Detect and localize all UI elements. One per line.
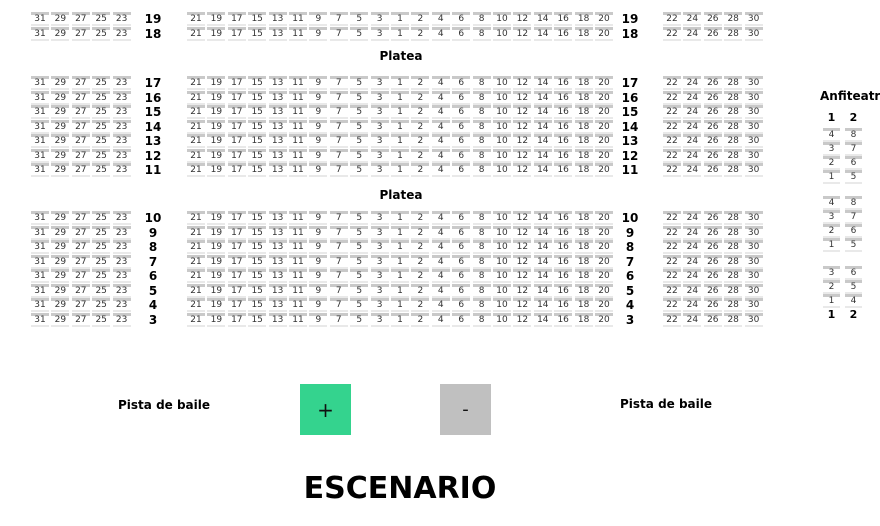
seat-platea-center-row10-2[interactable]: 2 [411, 211, 429, 225]
seat-platea-left-row11-25[interactable]: 25 [92, 163, 110, 177]
seat-platea-center-row11-13[interactable]: 13 [269, 163, 287, 177]
seat-platea-center-row17-18[interactable]: 18 [575, 76, 593, 90]
seat-platea-center-row19-7[interactable]: 7 [330, 12, 348, 26]
seat-platea-right-row6-22[interactable]: 22 [663, 269, 681, 283]
seat-platea-right-row19-30[interactable]: 30 [745, 12, 763, 26]
seat-platea-center-row3-12[interactable]: 12 [513, 313, 531, 327]
seat-platea-center-row3-6[interactable]: 6 [452, 313, 470, 327]
seat-anfiteatro-group1-col2-8[interactable]: 8 [845, 128, 862, 142]
seat-platea-right-row11-30[interactable]: 30 [745, 163, 763, 177]
seat-platea-center-row17-17[interactable]: 17 [228, 76, 246, 90]
seat-platea-center-row15-17[interactable]: 17 [228, 105, 246, 119]
seat-platea-center-row19-13[interactable]: 13 [269, 12, 287, 26]
seat-platea-center-row9-13[interactable]: 13 [269, 226, 287, 240]
seat-platea-center-row4-12[interactable]: 12 [513, 298, 531, 312]
seat-platea-center-row4-7[interactable]: 7 [330, 298, 348, 312]
seat-anfiteatro-group1-col1-1[interactable]: 1 [823, 170, 840, 184]
seat-platea-center-row11-10[interactable]: 10 [493, 163, 511, 177]
seat-platea-center-row11-14[interactable]: 14 [534, 163, 552, 177]
seat-platea-center-row13-8[interactable]: 8 [473, 134, 491, 148]
seat-platea-left-row7-29[interactable]: 29 [51, 255, 69, 269]
seat-platea-center-row6-2[interactable]: 2 [411, 269, 429, 283]
seat-platea-right-row7-22[interactable]: 22 [663, 255, 681, 269]
seat-platea-center-row10-4[interactable]: 4 [432, 211, 450, 225]
seat-platea-right-row14-26[interactable]: 26 [704, 120, 722, 134]
seat-platea-center-row4-6[interactable]: 6 [452, 298, 470, 312]
seat-platea-right-row12-22[interactable]: 22 [663, 149, 681, 163]
seat-platea-center-row9-14[interactable]: 14 [534, 226, 552, 240]
seat-platea-center-row15-8[interactable]: 8 [473, 105, 491, 119]
seat-platea-center-row6-17[interactable]: 17 [228, 269, 246, 283]
seat-platea-center-row4-21[interactable]: 21 [187, 298, 205, 312]
seat-platea-right-row13-24[interactable]: 24 [683, 134, 701, 148]
seat-platea-right-row15-24[interactable]: 24 [683, 105, 701, 119]
seat-platea-right-row15-28[interactable]: 28 [724, 105, 742, 119]
seat-platea-center-row18-2[interactable]: 2 [411, 27, 429, 41]
seat-platea-center-row7-10[interactable]: 10 [493, 255, 511, 269]
seat-platea-center-row18-18[interactable]: 18 [575, 27, 593, 41]
seat-platea-center-row12-19[interactable]: 19 [207, 149, 225, 163]
seat-platea-center-row6-11[interactable]: 11 [289, 269, 307, 283]
seat-platea-center-row5-6[interactable]: 6 [452, 284, 470, 298]
zoom-in-button[interactable]: + [300, 384, 351, 435]
seat-platea-left-row7-25[interactable]: 25 [92, 255, 110, 269]
seat-platea-center-row16-19[interactable]: 19 [207, 91, 225, 105]
seat-platea-center-row4-17[interactable]: 17 [228, 298, 246, 312]
seat-platea-right-row7-26[interactable]: 26 [704, 255, 722, 269]
seat-platea-left-row18-23[interactable]: 23 [113, 27, 131, 41]
seat-platea-right-row5-24[interactable]: 24 [683, 284, 701, 298]
seat-platea-center-row6-9[interactable]: 9 [309, 269, 327, 283]
seat-platea-center-row5-3[interactable]: 3 [371, 284, 389, 298]
seat-platea-left-row9-29[interactable]: 29 [51, 226, 69, 240]
seat-platea-left-row12-29[interactable]: 29 [51, 149, 69, 163]
seat-platea-center-row8-19[interactable]: 19 [207, 240, 225, 254]
seat-platea-center-row4-8[interactable]: 8 [473, 298, 491, 312]
zoom-out-button[interactable]: - [440, 384, 491, 435]
seat-platea-left-row17-29[interactable]: 29 [51, 76, 69, 90]
seat-platea-left-row5-23[interactable]: 23 [113, 284, 131, 298]
seat-platea-center-row14-8[interactable]: 8 [473, 120, 491, 134]
seat-platea-left-row3-27[interactable]: 27 [72, 313, 90, 327]
seat-anfiteatro-group2-col2-7[interactable]: 7 [845, 210, 862, 224]
seat-platea-right-row14-22[interactable]: 22 [663, 120, 681, 134]
seat-platea-center-row10-5[interactable]: 5 [350, 211, 368, 225]
seat-platea-center-row8-1[interactable]: 1 [391, 240, 409, 254]
seat-platea-left-row11-23[interactable]: 23 [113, 163, 131, 177]
seat-platea-left-row10-31[interactable]: 31 [31, 211, 49, 225]
seat-platea-center-row10-21[interactable]: 21 [187, 211, 205, 225]
seat-platea-right-row5-30[interactable]: 30 [745, 284, 763, 298]
seat-platea-center-row19-16[interactable]: 16 [554, 12, 572, 26]
seat-anfiteatro-group1-col2-5[interactable]: 5 [845, 170, 862, 184]
seat-platea-right-row16-30[interactable]: 30 [745, 91, 763, 105]
seat-platea-center-row19-10[interactable]: 10 [493, 12, 511, 26]
seat-platea-left-row9-31[interactable]: 31 [31, 226, 49, 240]
seat-platea-center-row8-17[interactable]: 17 [228, 240, 246, 254]
seat-platea-right-row16-26[interactable]: 26 [704, 91, 722, 105]
seat-platea-left-row15-31[interactable]: 31 [31, 105, 49, 119]
seat-platea-center-row19-14[interactable]: 14 [534, 12, 552, 26]
seat-platea-center-row8-13[interactable]: 13 [269, 240, 287, 254]
seat-platea-center-row17-11[interactable]: 11 [289, 76, 307, 90]
seat-platea-right-row12-26[interactable]: 26 [704, 149, 722, 163]
seat-platea-left-row5-27[interactable]: 27 [72, 284, 90, 298]
seat-platea-center-row11-11[interactable]: 11 [289, 163, 307, 177]
seat-platea-center-row5-2[interactable]: 2 [411, 284, 429, 298]
seat-platea-center-row17-5[interactable]: 5 [350, 76, 368, 90]
seat-platea-center-row3-17[interactable]: 17 [228, 313, 246, 327]
seat-platea-center-row5-7[interactable]: 7 [330, 284, 348, 298]
seat-platea-center-row5-14[interactable]: 14 [534, 284, 552, 298]
seat-platea-center-row8-4[interactable]: 4 [432, 240, 450, 254]
seat-platea-right-row16-22[interactable]: 22 [663, 91, 681, 105]
seat-platea-center-row15-1[interactable]: 1 [391, 105, 409, 119]
seat-platea-center-row5-8[interactable]: 8 [473, 284, 491, 298]
seat-platea-center-row3-8[interactable]: 8 [473, 313, 491, 327]
seat-platea-left-row16-27[interactable]: 27 [72, 91, 90, 105]
seat-platea-center-row18-19[interactable]: 19 [207, 27, 225, 41]
seat-platea-center-row7-7[interactable]: 7 [330, 255, 348, 269]
seat-platea-center-row18-9[interactable]: 9 [309, 27, 327, 41]
seat-platea-center-row14-10[interactable]: 10 [493, 120, 511, 134]
seat-platea-center-row12-5[interactable]: 5 [350, 149, 368, 163]
seat-platea-left-row6-31[interactable]: 31 [31, 269, 49, 283]
seat-platea-center-row13-16[interactable]: 16 [554, 134, 572, 148]
seat-platea-center-row12-12[interactable]: 12 [513, 149, 531, 163]
seat-platea-center-row6-6[interactable]: 6 [452, 269, 470, 283]
seat-platea-center-row5-5[interactable]: 5 [350, 284, 368, 298]
seat-platea-right-row12-30[interactable]: 30 [745, 149, 763, 163]
seat-platea-center-row17-3[interactable]: 3 [371, 76, 389, 90]
seat-platea-center-row19-15[interactable]: 15 [248, 12, 266, 26]
seat-platea-left-row15-29[interactable]: 29 [51, 105, 69, 119]
seat-platea-center-row4-9[interactable]: 9 [309, 298, 327, 312]
seat-anfiteatro-group3-col1-3[interactable]: 3 [823, 266, 840, 280]
seat-platea-left-row17-25[interactable]: 25 [92, 76, 110, 90]
seat-platea-center-row9-20[interactable]: 20 [595, 226, 613, 240]
seat-platea-center-row16-1[interactable]: 1 [391, 91, 409, 105]
seat-platea-left-row12-25[interactable]: 25 [92, 149, 110, 163]
seat-platea-center-row19-5[interactable]: 5 [350, 12, 368, 26]
seat-platea-center-row4-20[interactable]: 20 [595, 298, 613, 312]
seat-platea-center-row13-14[interactable]: 14 [534, 134, 552, 148]
seat-platea-left-row8-23[interactable]: 23 [113, 240, 131, 254]
seat-platea-center-row9-6[interactable]: 6 [452, 226, 470, 240]
seat-platea-center-row14-14[interactable]: 14 [534, 120, 552, 134]
seat-platea-center-row17-16[interactable]: 16 [554, 76, 572, 90]
seat-platea-left-row5-31[interactable]: 31 [31, 284, 49, 298]
seat-platea-center-row7-15[interactable]: 15 [248, 255, 266, 269]
seat-platea-center-row12-10[interactable]: 10 [493, 149, 511, 163]
seat-platea-left-row7-23[interactable]: 23 [113, 255, 131, 269]
seat-platea-center-row16-17[interactable]: 17 [228, 91, 246, 105]
seat-platea-left-row13-25[interactable]: 25 [92, 134, 110, 148]
seat-platea-center-row13-4[interactable]: 4 [432, 134, 450, 148]
seat-platea-center-row12-17[interactable]: 17 [228, 149, 246, 163]
seat-platea-right-row10-30[interactable]: 30 [745, 211, 763, 225]
seat-platea-center-row8-9[interactable]: 9 [309, 240, 327, 254]
seat-platea-right-row19-24[interactable]: 24 [683, 12, 701, 26]
seat-platea-right-row6-24[interactable]: 24 [683, 269, 701, 283]
seat-platea-center-row7-19[interactable]: 19 [207, 255, 225, 269]
seat-platea-center-row7-11[interactable]: 11 [289, 255, 307, 269]
seat-platea-center-row19-2[interactable]: 2 [411, 12, 429, 26]
seat-platea-right-row8-30[interactable]: 30 [745, 240, 763, 254]
seat-platea-left-row5-29[interactable]: 29 [51, 284, 69, 298]
seat-platea-center-row14-1[interactable]: 1 [391, 120, 409, 134]
seat-platea-center-row19-4[interactable]: 4 [432, 12, 450, 26]
seat-platea-center-row18-1[interactable]: 1 [391, 27, 409, 41]
seat-platea-center-row7-14[interactable]: 14 [534, 255, 552, 269]
seat-platea-left-row14-31[interactable]: 31 [31, 120, 49, 134]
seat-platea-left-row18-31[interactable]: 31 [31, 27, 49, 41]
seat-platea-center-row9-3[interactable]: 3 [371, 226, 389, 240]
seat-platea-center-row17-15[interactable]: 15 [248, 76, 266, 90]
seat-platea-center-row11-12[interactable]: 12 [513, 163, 531, 177]
seat-platea-center-row19-18[interactable]: 18 [575, 12, 593, 26]
seat-platea-center-row12-9[interactable]: 9 [309, 149, 327, 163]
seat-platea-center-row10-7[interactable]: 7 [330, 211, 348, 225]
seat-platea-center-row5-19[interactable]: 19 [207, 284, 225, 298]
seat-platea-right-row14-28[interactable]: 28 [724, 120, 742, 134]
seat-platea-left-row17-23[interactable]: 23 [113, 76, 131, 90]
seat-platea-left-row13-31[interactable]: 31 [31, 134, 49, 148]
seat-platea-center-row6-18[interactable]: 18 [575, 269, 593, 283]
seat-platea-center-row7-6[interactable]: 6 [452, 255, 470, 269]
seat-platea-center-row13-3[interactable]: 3 [371, 134, 389, 148]
seat-platea-center-row6-10[interactable]: 10 [493, 269, 511, 283]
seat-platea-right-row17-26[interactable]: 26 [704, 76, 722, 90]
seat-platea-left-row4-27[interactable]: 27 [72, 298, 90, 312]
seat-platea-center-row4-13[interactable]: 13 [269, 298, 287, 312]
seat-platea-center-row7-8[interactable]: 8 [473, 255, 491, 269]
seat-platea-left-row13-23[interactable]: 23 [113, 134, 131, 148]
seat-platea-center-row13-19[interactable]: 19 [207, 134, 225, 148]
seat-platea-center-row13-10[interactable]: 10 [493, 134, 511, 148]
seat-platea-center-row11-6[interactable]: 6 [452, 163, 470, 177]
seat-platea-center-row14-13[interactable]: 13 [269, 120, 287, 134]
seat-platea-center-row12-15[interactable]: 15 [248, 149, 266, 163]
seat-platea-center-row16-16[interactable]: 16 [554, 91, 572, 105]
seat-platea-center-row8-15[interactable]: 15 [248, 240, 266, 254]
seat-platea-right-row14-30[interactable]: 30 [745, 120, 763, 134]
seat-platea-center-row7-12[interactable]: 12 [513, 255, 531, 269]
seat-platea-left-row7-27[interactable]: 27 [72, 255, 90, 269]
seat-platea-center-row16-14[interactable]: 14 [534, 91, 552, 105]
seat-platea-left-row11-31[interactable]: 31 [31, 163, 49, 177]
seat-platea-center-row5-21[interactable]: 21 [187, 284, 205, 298]
seat-platea-right-row19-28[interactable]: 28 [724, 12, 742, 26]
seat-platea-center-row6-8[interactable]: 8 [473, 269, 491, 283]
seat-platea-left-row18-29[interactable]: 29 [51, 27, 69, 41]
seat-platea-right-row13-22[interactable]: 22 [663, 134, 681, 148]
seat-platea-center-row12-13[interactable]: 13 [269, 149, 287, 163]
seat-platea-center-row15-21[interactable]: 21 [187, 105, 205, 119]
seat-platea-right-row3-22[interactable]: 22 [663, 313, 681, 327]
seat-platea-center-row4-4[interactable]: 4 [432, 298, 450, 312]
seat-platea-right-row18-22[interactable]: 22 [663, 27, 681, 41]
seat-platea-center-row3-20[interactable]: 20 [595, 313, 613, 327]
seat-platea-center-row14-18[interactable]: 18 [575, 120, 593, 134]
seat-platea-center-row17-13[interactable]: 13 [269, 76, 287, 90]
seat-platea-center-row10-17[interactable]: 17 [228, 211, 246, 225]
seat-platea-right-row10-26[interactable]: 26 [704, 211, 722, 225]
seat-platea-right-row5-26[interactable]: 26 [704, 284, 722, 298]
seat-platea-center-row9-11[interactable]: 11 [289, 226, 307, 240]
seat-platea-left-row9-23[interactable]: 23 [113, 226, 131, 240]
seat-platea-center-row17-4[interactable]: 4 [432, 76, 450, 90]
seat-platea-center-row10-6[interactable]: 6 [452, 211, 470, 225]
seat-platea-left-row17-31[interactable]: 31 [31, 76, 49, 90]
seat-platea-right-row4-26[interactable]: 26 [704, 298, 722, 312]
seat-platea-left-row3-29[interactable]: 29 [51, 313, 69, 327]
seat-platea-center-row10-11[interactable]: 11 [289, 211, 307, 225]
seat-platea-right-row10-22[interactable]: 22 [663, 211, 681, 225]
seat-platea-center-row6-7[interactable]: 7 [330, 269, 348, 283]
seat-platea-center-row10-3[interactable]: 3 [371, 211, 389, 225]
seat-platea-right-row19-26[interactable]: 26 [704, 12, 722, 26]
seat-platea-center-row3-11[interactable]: 11 [289, 313, 307, 327]
seat-platea-right-row9-28[interactable]: 28 [724, 226, 742, 240]
seat-platea-right-row9-24[interactable]: 24 [683, 226, 701, 240]
seat-anfiteatro-group1-col1-3[interactable]: 3 [823, 142, 840, 156]
seat-platea-center-row15-12[interactable]: 12 [513, 105, 531, 119]
seat-platea-center-row19-17[interactable]: 17 [228, 12, 246, 26]
seat-anfiteatro-group3-col1-1[interactable]: 1 [823, 294, 840, 308]
seat-platea-center-row10-13[interactable]: 13 [269, 211, 287, 225]
seat-platea-center-row12-16[interactable]: 16 [554, 149, 572, 163]
seat-platea-center-row19-3[interactable]: 3 [371, 12, 389, 26]
seat-platea-center-row6-4[interactable]: 4 [432, 269, 450, 283]
seat-platea-center-row18-14[interactable]: 14 [534, 27, 552, 41]
seat-anfiteatro-group1-col2-7[interactable]: 7 [845, 142, 862, 156]
seat-platea-left-row3-25[interactable]: 25 [92, 313, 110, 327]
seat-platea-center-row9-1[interactable]: 1 [391, 226, 409, 240]
seat-platea-center-row5-10[interactable]: 10 [493, 284, 511, 298]
seat-platea-center-row15-14[interactable]: 14 [534, 105, 552, 119]
seat-platea-center-row16-9[interactable]: 9 [309, 91, 327, 105]
seat-platea-left-row6-27[interactable]: 27 [72, 269, 90, 283]
seat-platea-center-row3-19[interactable]: 19 [207, 313, 225, 327]
seat-platea-center-row12-20[interactable]: 20 [595, 149, 613, 163]
seat-platea-center-row18-8[interactable]: 8 [473, 27, 491, 41]
seat-platea-center-row5-13[interactable]: 13 [269, 284, 287, 298]
seat-platea-center-row4-18[interactable]: 18 [575, 298, 593, 312]
seat-platea-right-row13-30[interactable]: 30 [745, 134, 763, 148]
seat-platea-center-row15-9[interactable]: 9 [309, 105, 327, 119]
seat-platea-right-row17-24[interactable]: 24 [683, 76, 701, 90]
seat-platea-center-row8-12[interactable]: 12 [513, 240, 531, 254]
seat-platea-center-row19-19[interactable]: 19 [207, 12, 225, 26]
seat-platea-center-row19-20[interactable]: 20 [595, 12, 613, 26]
seat-platea-center-row17-6[interactable]: 6 [452, 76, 470, 90]
seat-platea-left-row15-23[interactable]: 23 [113, 105, 131, 119]
seat-platea-left-row16-31[interactable]: 31 [31, 91, 49, 105]
seat-platea-center-row9-19[interactable]: 19 [207, 226, 225, 240]
seat-platea-center-row6-19[interactable]: 19 [207, 269, 225, 283]
seat-platea-center-row3-4[interactable]: 4 [432, 313, 450, 327]
seat-platea-center-row12-1[interactable]: 1 [391, 149, 409, 163]
seat-platea-center-row11-9[interactable]: 9 [309, 163, 327, 177]
seat-platea-center-row3-3[interactable]: 3 [371, 313, 389, 327]
seat-platea-left-row3-23[interactable]: 23 [113, 313, 131, 327]
seat-platea-center-row6-15[interactable]: 15 [248, 269, 266, 283]
seat-anfiteatro-group1-col1-4[interactable]: 4 [823, 128, 840, 142]
seat-platea-center-row4-3[interactable]: 3 [371, 298, 389, 312]
seat-platea-center-row11-16[interactable]: 16 [554, 163, 572, 177]
seat-platea-left-row10-27[interactable]: 27 [72, 211, 90, 225]
seat-platea-center-row10-20[interactable]: 20 [595, 211, 613, 225]
seat-platea-left-row8-27[interactable]: 27 [72, 240, 90, 254]
seat-platea-left-row8-29[interactable]: 29 [51, 240, 69, 254]
seat-platea-center-row16-13[interactable]: 13 [269, 91, 287, 105]
seat-anfiteatro-group2-col1-1[interactable]: 1 [823, 238, 840, 252]
seat-platea-center-row5-12[interactable]: 12 [513, 284, 531, 298]
seat-platea-center-row14-15[interactable]: 15 [248, 120, 266, 134]
seat-platea-center-row11-2[interactable]: 2 [411, 163, 429, 177]
seat-platea-center-row17-8[interactable]: 8 [473, 76, 491, 90]
seat-platea-center-row6-21[interactable]: 21 [187, 269, 205, 283]
seat-platea-center-row12-18[interactable]: 18 [575, 149, 593, 163]
seat-platea-right-row14-24[interactable]: 24 [683, 120, 701, 134]
seat-platea-center-row13-17[interactable]: 17 [228, 134, 246, 148]
seat-platea-center-row3-21[interactable]: 21 [187, 313, 205, 327]
seat-anfiteatro-group3-col2-6[interactable]: 6 [845, 266, 862, 280]
seat-anfiteatro-group1-col1-2[interactable]: 2 [823, 156, 840, 170]
seat-platea-right-row7-30[interactable]: 30 [745, 255, 763, 269]
seat-platea-center-row9-16[interactable]: 16 [554, 226, 572, 240]
seat-platea-left-row19-29[interactable]: 29 [51, 12, 69, 26]
seat-platea-center-row15-13[interactable]: 13 [269, 105, 287, 119]
seat-platea-left-row4-29[interactable]: 29 [51, 298, 69, 312]
seat-platea-left-row12-31[interactable]: 31 [31, 149, 49, 163]
seat-platea-center-row3-18[interactable]: 18 [575, 313, 593, 327]
seat-platea-right-row7-28[interactable]: 28 [724, 255, 742, 269]
seat-platea-center-row18-11[interactable]: 11 [289, 27, 307, 41]
seat-platea-center-row8-5[interactable]: 5 [350, 240, 368, 254]
seat-platea-right-row18-30[interactable]: 30 [745, 27, 763, 41]
seat-platea-center-row6-13[interactable]: 13 [269, 269, 287, 283]
seat-platea-center-row15-19[interactable]: 19 [207, 105, 225, 119]
seat-platea-center-row11-17[interactable]: 17 [228, 163, 246, 177]
seat-platea-center-row6-16[interactable]: 16 [554, 269, 572, 283]
seat-platea-center-row15-16[interactable]: 16 [554, 105, 572, 119]
seat-platea-center-row8-14[interactable]: 14 [534, 240, 552, 254]
seat-platea-right-row17-28[interactable]: 28 [724, 76, 742, 90]
seat-platea-center-row16-6[interactable]: 6 [452, 91, 470, 105]
seat-platea-right-row6-26[interactable]: 26 [704, 269, 722, 283]
seat-platea-right-row15-22[interactable]: 22 [663, 105, 681, 119]
seat-platea-center-row5-15[interactable]: 15 [248, 284, 266, 298]
seat-platea-center-row17-20[interactable]: 20 [595, 76, 613, 90]
seat-platea-center-row14-4[interactable]: 4 [432, 120, 450, 134]
seat-platea-center-row16-8[interactable]: 8 [473, 91, 491, 105]
seat-platea-left-row11-27[interactable]: 27 [72, 163, 90, 177]
seat-platea-left-row16-23[interactable]: 23 [113, 91, 131, 105]
seat-platea-center-row6-20[interactable]: 20 [595, 269, 613, 283]
seat-platea-right-row10-28[interactable]: 28 [724, 211, 742, 225]
seat-platea-left-row4-31[interactable]: 31 [31, 298, 49, 312]
seat-platea-center-row14-12[interactable]: 12 [513, 120, 531, 134]
seat-platea-center-row11-7[interactable]: 7 [330, 163, 348, 177]
seat-platea-center-row5-18[interactable]: 18 [575, 284, 593, 298]
seat-platea-center-row8-16[interactable]: 16 [554, 240, 572, 254]
seat-platea-left-row12-27[interactable]: 27 [72, 149, 90, 163]
seat-platea-left-row13-29[interactable]: 29 [51, 134, 69, 148]
seat-platea-left-row16-25[interactable]: 25 [92, 91, 110, 105]
seat-platea-center-row19-9[interactable]: 9 [309, 12, 327, 26]
